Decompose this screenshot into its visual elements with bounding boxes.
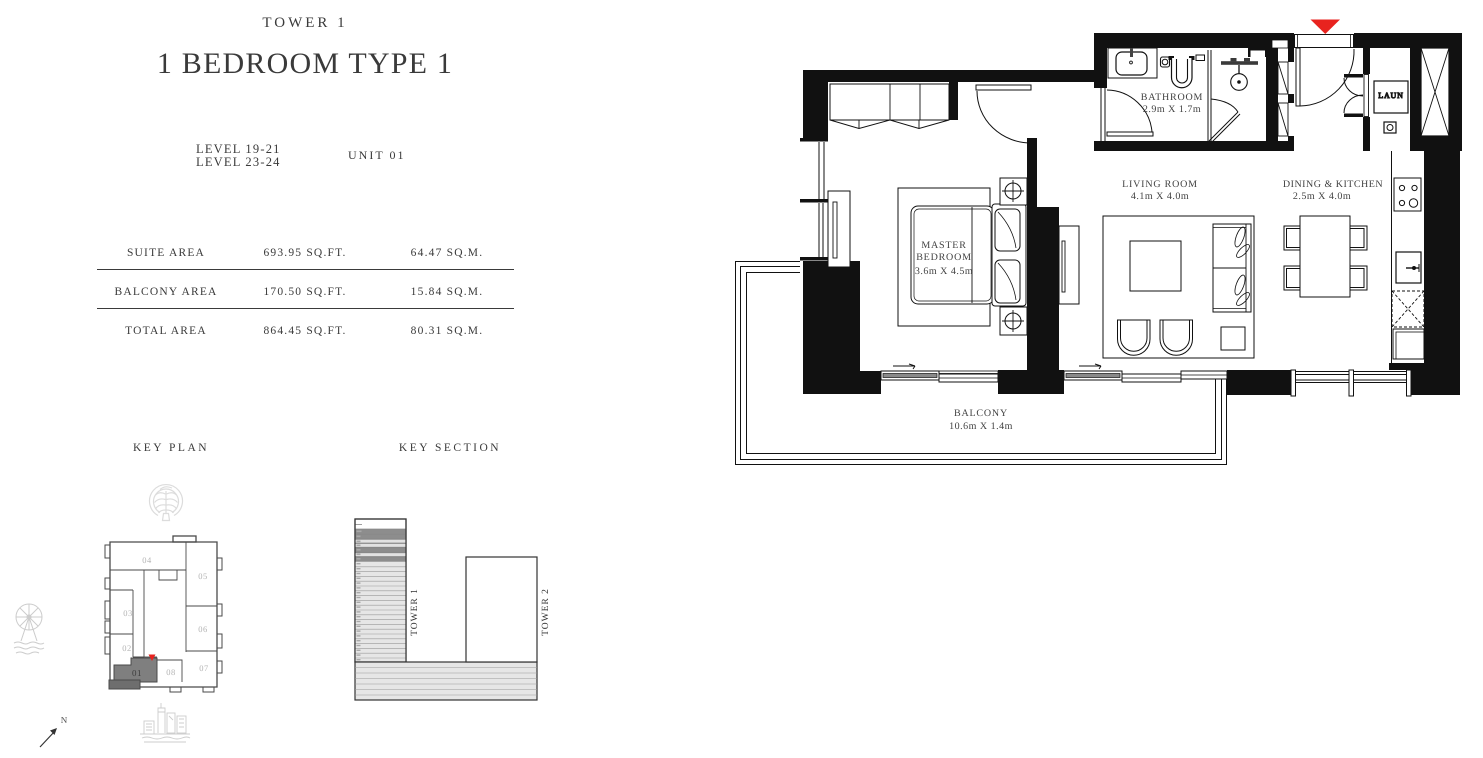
svg-text:4.1m X 4.0m: 4.1m X 4.0m bbox=[1131, 191, 1189, 202]
svg-text:BEDROOM: BEDROOM bbox=[916, 252, 972, 263]
svg-text:04: 04 bbox=[142, 555, 152, 565]
svg-text:BALCONY: BALCONY bbox=[954, 408, 1008, 419]
svg-text:06: 06 bbox=[198, 624, 208, 634]
svg-text:2.9m X 1.7m: 2.9m X 1.7m bbox=[1143, 104, 1201, 115]
svg-text:DINING & KITCHEN: DINING & KITCHEN bbox=[1283, 179, 1383, 190]
svg-text:N: N bbox=[61, 715, 68, 725]
svg-text:LAUN: LAUN bbox=[1378, 91, 1403, 100]
svg-text:01: 01 bbox=[132, 668, 142, 678]
svg-text:2.5m X 4.0m: 2.5m X 4.0m bbox=[1293, 191, 1351, 202]
svg-text:03: 03 bbox=[123, 608, 133, 618]
svg-text:LIVING ROOM: LIVING ROOM bbox=[1122, 179, 1198, 190]
svg-text:TOWER 2: TOWER 2 bbox=[541, 588, 551, 636]
svg-text:TOWER 1: TOWER 1 bbox=[410, 588, 420, 636]
svg-text:10.6m X 1.4m: 10.6m X 1.4m bbox=[949, 421, 1013, 432]
svg-text:3.6m X 4.5m: 3.6m X 4.5m bbox=[915, 266, 973, 277]
svg-text:05: 05 bbox=[198, 571, 208, 581]
svg-text:BATHROOM: BATHROOM bbox=[1141, 92, 1204, 103]
svg-text:07: 07 bbox=[199, 663, 209, 673]
svg-text:08: 08 bbox=[166, 667, 176, 677]
svg-text:MASTER: MASTER bbox=[921, 240, 966, 251]
svg-text:02: 02 bbox=[122, 643, 132, 653]
